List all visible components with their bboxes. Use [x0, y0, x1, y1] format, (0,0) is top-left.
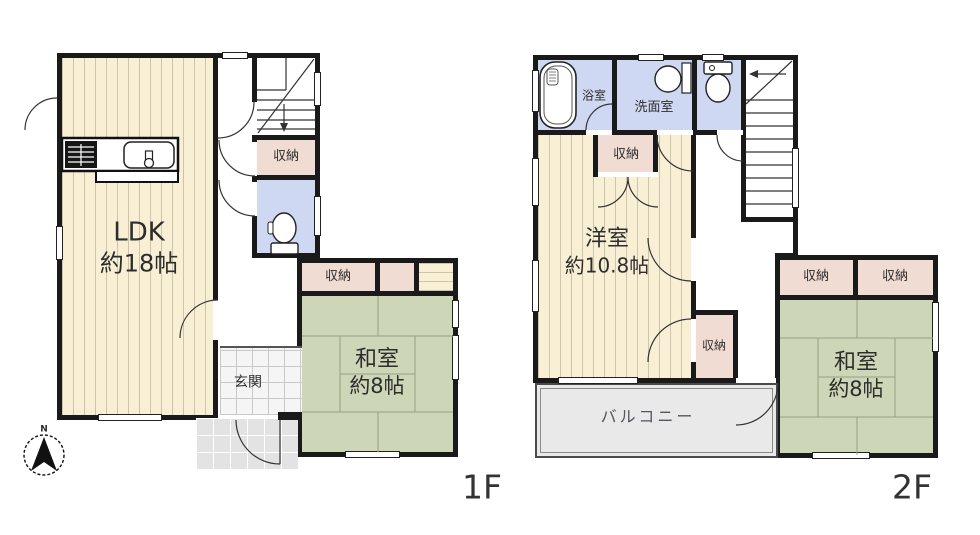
label-washitsu-1f: 和室 約8帖 [349, 347, 404, 399]
room-washroom-2f [612, 55, 697, 135]
door-opening [213, 300, 218, 340]
window-marker [222, 52, 248, 59]
window-marker [56, 226, 63, 260]
label-closet-hall-2f: 収納 [613, 147, 639, 163]
floor-label-1f: 1F [462, 468, 502, 507]
compass-north-label: N [40, 425, 48, 436]
window-marker [345, 451, 400, 458]
door-opening [586, 130, 612, 135]
porch-tiles [196, 418, 298, 470]
window-marker [932, 302, 939, 352]
label-ldk: LDK 約18帖 [100, 218, 179, 279]
staircase-2f [741, 55, 798, 222]
window-marker [532, 70, 539, 112]
wall-segment [278, 412, 302, 420]
window-marker [792, 148, 799, 208]
label-yoshitsu-2f: 洋室 約10.8帖 [565, 226, 650, 277]
label-balcony: バルコニー [601, 407, 696, 427]
washitsu-2f-size: 約8帖 [828, 377, 883, 403]
wall-segment [775, 253, 798, 258]
door-opening [736, 378, 776, 383]
wall-segment [793, 217, 798, 258]
door-opening [657, 130, 693, 135]
door-opening [691, 238, 696, 281]
window-marker [532, 158, 539, 206]
label-bathroom-2f: 浴室 [582, 89, 606, 104]
door-opening [252, 142, 257, 176]
washitsu-1f-name: 和室 [349, 347, 404, 374]
genkan-step-line [220, 346, 302, 348]
yoshitsu-name: 洋室 [565, 226, 650, 253]
toilet-room-1f [252, 175, 320, 258]
yoshitsu-size: 約10.8帖 [565, 253, 650, 277]
door-opening [598, 172, 658, 177]
label-washitsu-2f: 和室 約8帖 [828, 350, 883, 402]
window-marker [314, 196, 321, 236]
window-marker [812, 452, 870, 459]
label-washroom-2f: 洗面室 [634, 100, 673, 116]
window-marker [98, 414, 162, 421]
label-closet-side-2f: 収納 [702, 339, 726, 354]
floorplan-stage: LDK 約18帖 収納 収納 和室 約8帖 玄関 1F 浴室 洗面室 収納 洋室… [0, 0, 980, 535]
washitsu-2f-name: 和室 [828, 350, 883, 377]
staircase-1f [252, 53, 320, 140]
door-opening [252, 182, 257, 216]
label-genkan: 玄関 [234, 374, 262, 391]
label-closet-washitsu-2f-left: 収納 [803, 269, 829, 285]
window-marker [638, 54, 664, 61]
door-opening [691, 319, 696, 362]
label-closet-washitsu-1f: 収納 [325, 269, 351, 285]
washitsu-1f-size: 約8帖 [349, 374, 404, 400]
door-opening [717, 130, 743, 135]
window-marker [314, 72, 321, 106]
window-marker [452, 335, 459, 380]
compass-icon [24, 435, 64, 475]
window-marker [558, 377, 638, 384]
window-marker [452, 300, 459, 328]
label-closet-washitsu-2f-right: 収納 [882, 269, 908, 285]
window-marker [702, 54, 724, 61]
ldk-name: LDK [100, 218, 179, 250]
toilet-room-2f [692, 55, 746, 135]
floor-label-2f: 2F [892, 468, 932, 507]
ldk-size: 約18帖 [100, 249, 179, 278]
label-closet-hall-1f: 収納 [273, 149, 299, 165]
door-opening [252, 102, 257, 135]
window-marker [532, 260, 539, 312]
